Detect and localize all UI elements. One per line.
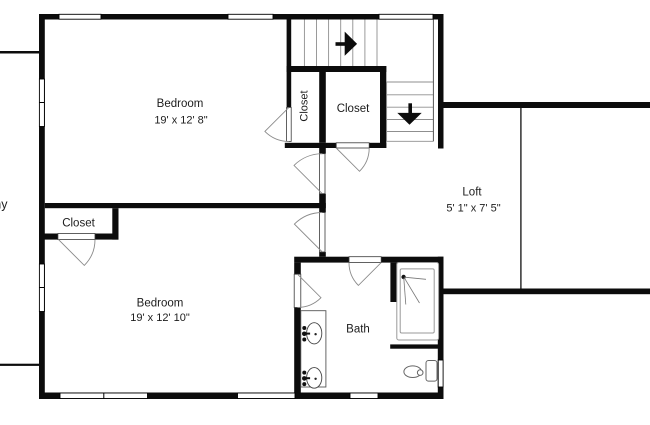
svg-text:Closet: Closet: [299, 90, 311, 121]
svg-text:Bedroom: Bedroom: [157, 98, 204, 110]
svg-text:Closet: Closet: [62, 218, 95, 230]
svg-text:5' 1" x 7' 5": 5' 1" x 7' 5": [446, 203, 500, 215]
svg-text:Bath: Bath: [346, 324, 370, 336]
svg-text:19' x 12' 8": 19' x 12' 8": [154, 115, 207, 127]
svg-text:Closet: Closet: [337, 103, 370, 115]
svg-text:19' x 12' 10": 19' x 12' 10": [130, 312, 190, 324]
svg-text:Loft: Loft: [462, 187, 482, 199]
svg-text:Bedroom: Bedroom: [137, 298, 184, 310]
svg-text:ny: ny: [0, 198, 8, 212]
